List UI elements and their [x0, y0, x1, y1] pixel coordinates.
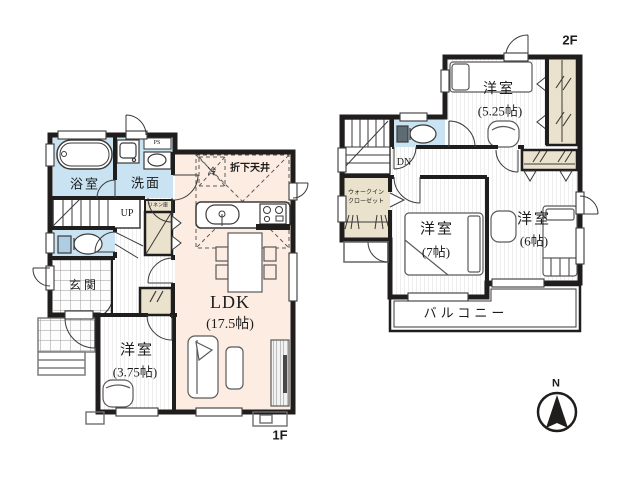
room-size-ldk: (17.5帖): [206, 318, 254, 332]
room-size-bedroom375: (3.75帖): [113, 366, 157, 379]
room-size-bedroom7: (7帖): [422, 246, 450, 259]
chair-6: [491, 211, 516, 242]
room-size-bedroom525: (5.25帖): [478, 105, 522, 118]
wic-floor: [344, 177, 390, 240]
room-label-bedroom7: 洋室: [420, 223, 454, 238]
label-stairs-down: DN: [397, 158, 411, 168]
floor-2-plan: [338, 35, 598, 331]
sofa: [188, 336, 218, 398]
room-label-bedroom375: 洋室: [120, 344, 154, 359]
closet-bedroom375: [140, 288, 172, 315]
room-label-entrance: 玄関: [69, 279, 99, 291]
compass-north-label: N: [552, 379, 560, 390]
storage-under-wic: [344, 242, 388, 262]
floor-1-plan: [33, 115, 308, 426]
washbasin: [144, 152, 171, 169]
tv-board: [271, 340, 289, 406]
room-label-balcony: バルコニー: [424, 307, 509, 320]
room-size-bedroom6: (6帖): [520, 235, 548, 248]
chair-525: [488, 121, 519, 147]
bedroom375-chair: [103, 380, 133, 407]
kitchen-counter: [196, 202, 290, 230]
closet-6: [522, 150, 577, 170]
floor-label-2f: 2F: [562, 34, 577, 47]
label-wic-line1: ウォークイン: [348, 190, 384, 196]
label-wic-line2: クローゼット: [348, 199, 384, 205]
porch-steps: [38, 352, 85, 375]
living-table: [226, 347, 243, 389]
label-linen: リネン庫: [148, 204, 168, 209]
compass-icon: [538, 393, 576, 431]
room-label-bedroom6: 洋室: [517, 213, 551, 228]
toilet-2f: [397, 125, 436, 143]
floor-plan: 浴室 洗面 PS リネン庫 UP 玄関 洋室 (3.75帖) LDK (17.5…: [0, 0, 640, 480]
label-stairs-up: UP: [121, 209, 134, 219]
washing-machine: [117, 140, 139, 163]
label-pipe-space: PS: [154, 140, 161, 146]
room-label-bedroom525: 洋室: [483, 83, 515, 97]
label-refrigerator: 冷: [207, 168, 216, 177]
room-label-ldk: LDK: [210, 293, 250, 311]
room-label-bath: 浴室: [70, 178, 100, 191]
floor-label-1f: 1F: [272, 429, 287, 442]
bathtub: [57, 140, 112, 169]
label-lowered-ceiling: 折下天井: [230, 164, 270, 174]
room-label-washroom: 洗面: [131, 177, 161, 190]
